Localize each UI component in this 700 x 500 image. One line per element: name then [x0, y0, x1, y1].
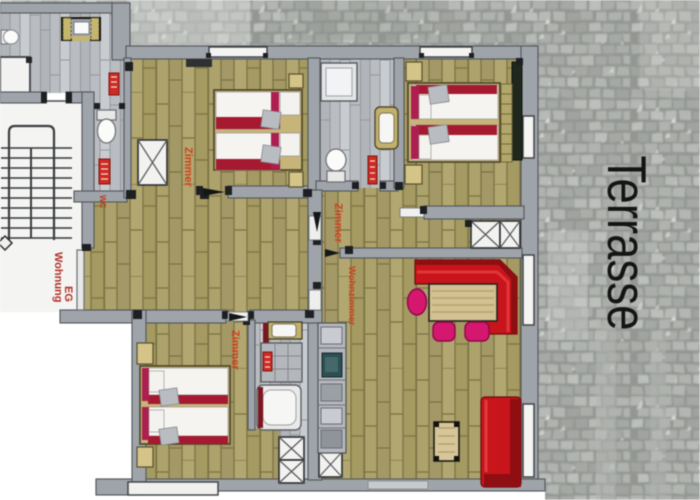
svg-text:Zimmer: Zimmer [229, 330, 241, 370]
svg-text:Zimmer: Zimmer [332, 203, 344, 243]
svg-text:Wohnzimmer: Wohnzimmer [346, 266, 357, 326]
svg-text:EG: EG [62, 286, 74, 302]
svg-text:WC: WC [98, 195, 107, 209]
svg-text:Zimmer: Zimmer [182, 147, 194, 187]
svg-text:Terrasse: Terrasse [596, 156, 658, 331]
